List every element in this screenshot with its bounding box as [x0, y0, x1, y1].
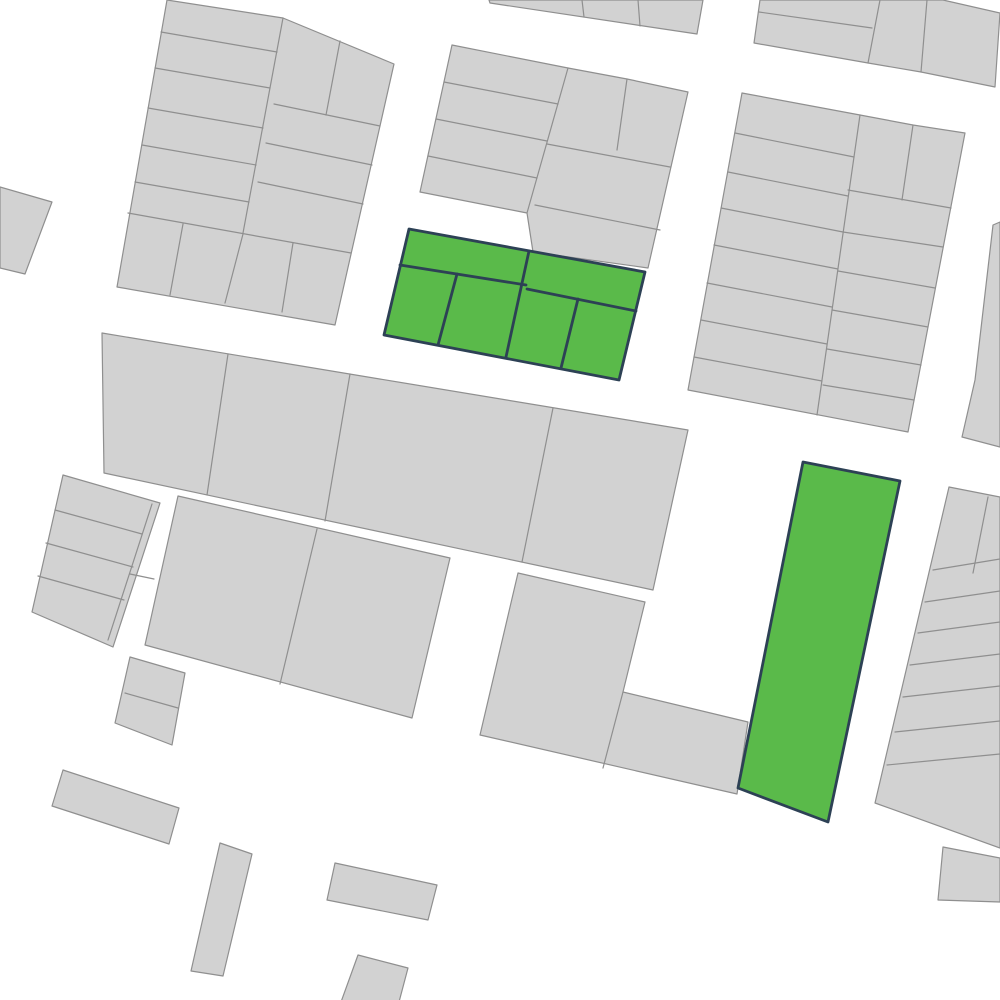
parcel-bar-south-center-outline[interactable] — [327, 863, 437, 920]
block-top-right-outline[interactable] — [688, 93, 965, 432]
sliver-right-edge-outline[interactable] — [962, 222, 1000, 447]
sliver-right-edge[interactable] — [962, 222, 1000, 447]
strip-top-center-outline[interactable] — [489, 0, 703, 34]
block-top-right[interactable] — [688, 93, 965, 432]
block-top-left[interactable] — [117, 0, 394, 325]
block-left-strips-outline[interactable] — [32, 475, 160, 647]
parcel-far-left-outline[interactable] — [0, 187, 52, 274]
block-left-strips[interactable] — [32, 475, 160, 647]
parcel-bar-south-center[interactable] — [327, 863, 437, 920]
parcel-bar-south-vertical-outline[interactable] — [191, 843, 252, 976]
parcel-bottom-center[interactable] — [341, 955, 408, 1000]
parcel-left-small-outline[interactable] — [115, 657, 185, 745]
selected-parcel-tall-outline[interactable] — [738, 462, 900, 822]
block-right-column[interactable] — [875, 487, 1000, 848]
parcel-bar-southwest-outline[interactable] — [52, 770, 179, 844]
parcel-bottom-center-outline[interactable] — [341, 955, 408, 1000]
block-right-column-outline[interactable] — [875, 487, 1000, 848]
selected-parcel-tall[interactable] — [738, 462, 900, 822]
parcel-left-small[interactable] — [115, 657, 185, 745]
parcel-bar-southwest[interactable] — [52, 770, 179, 844]
block-top-center-outline[interactable] — [420, 45, 688, 268]
block-top-center[interactable] — [420, 45, 688, 268]
block-center-bottom-l-outline[interactable] — [480, 573, 748, 794]
parcel-bottom-right-outline[interactable] — [938, 847, 1000, 902]
map-viewport — [0, 0, 1000, 1000]
block-center-bottom-l[interactable] — [480, 573, 748, 794]
strip-top-center[interactable] — [489, 0, 703, 34]
parcel-bottom-right[interactable] — [938, 847, 1000, 902]
parcel-far-left[interactable] — [0, 187, 52, 274]
map-canvas[interactable] — [0, 0, 1000, 1000]
block-top-right-upper[interactable] — [754, 0, 1000, 87]
parcel-bar-south-vertical[interactable] — [191, 843, 252, 976]
